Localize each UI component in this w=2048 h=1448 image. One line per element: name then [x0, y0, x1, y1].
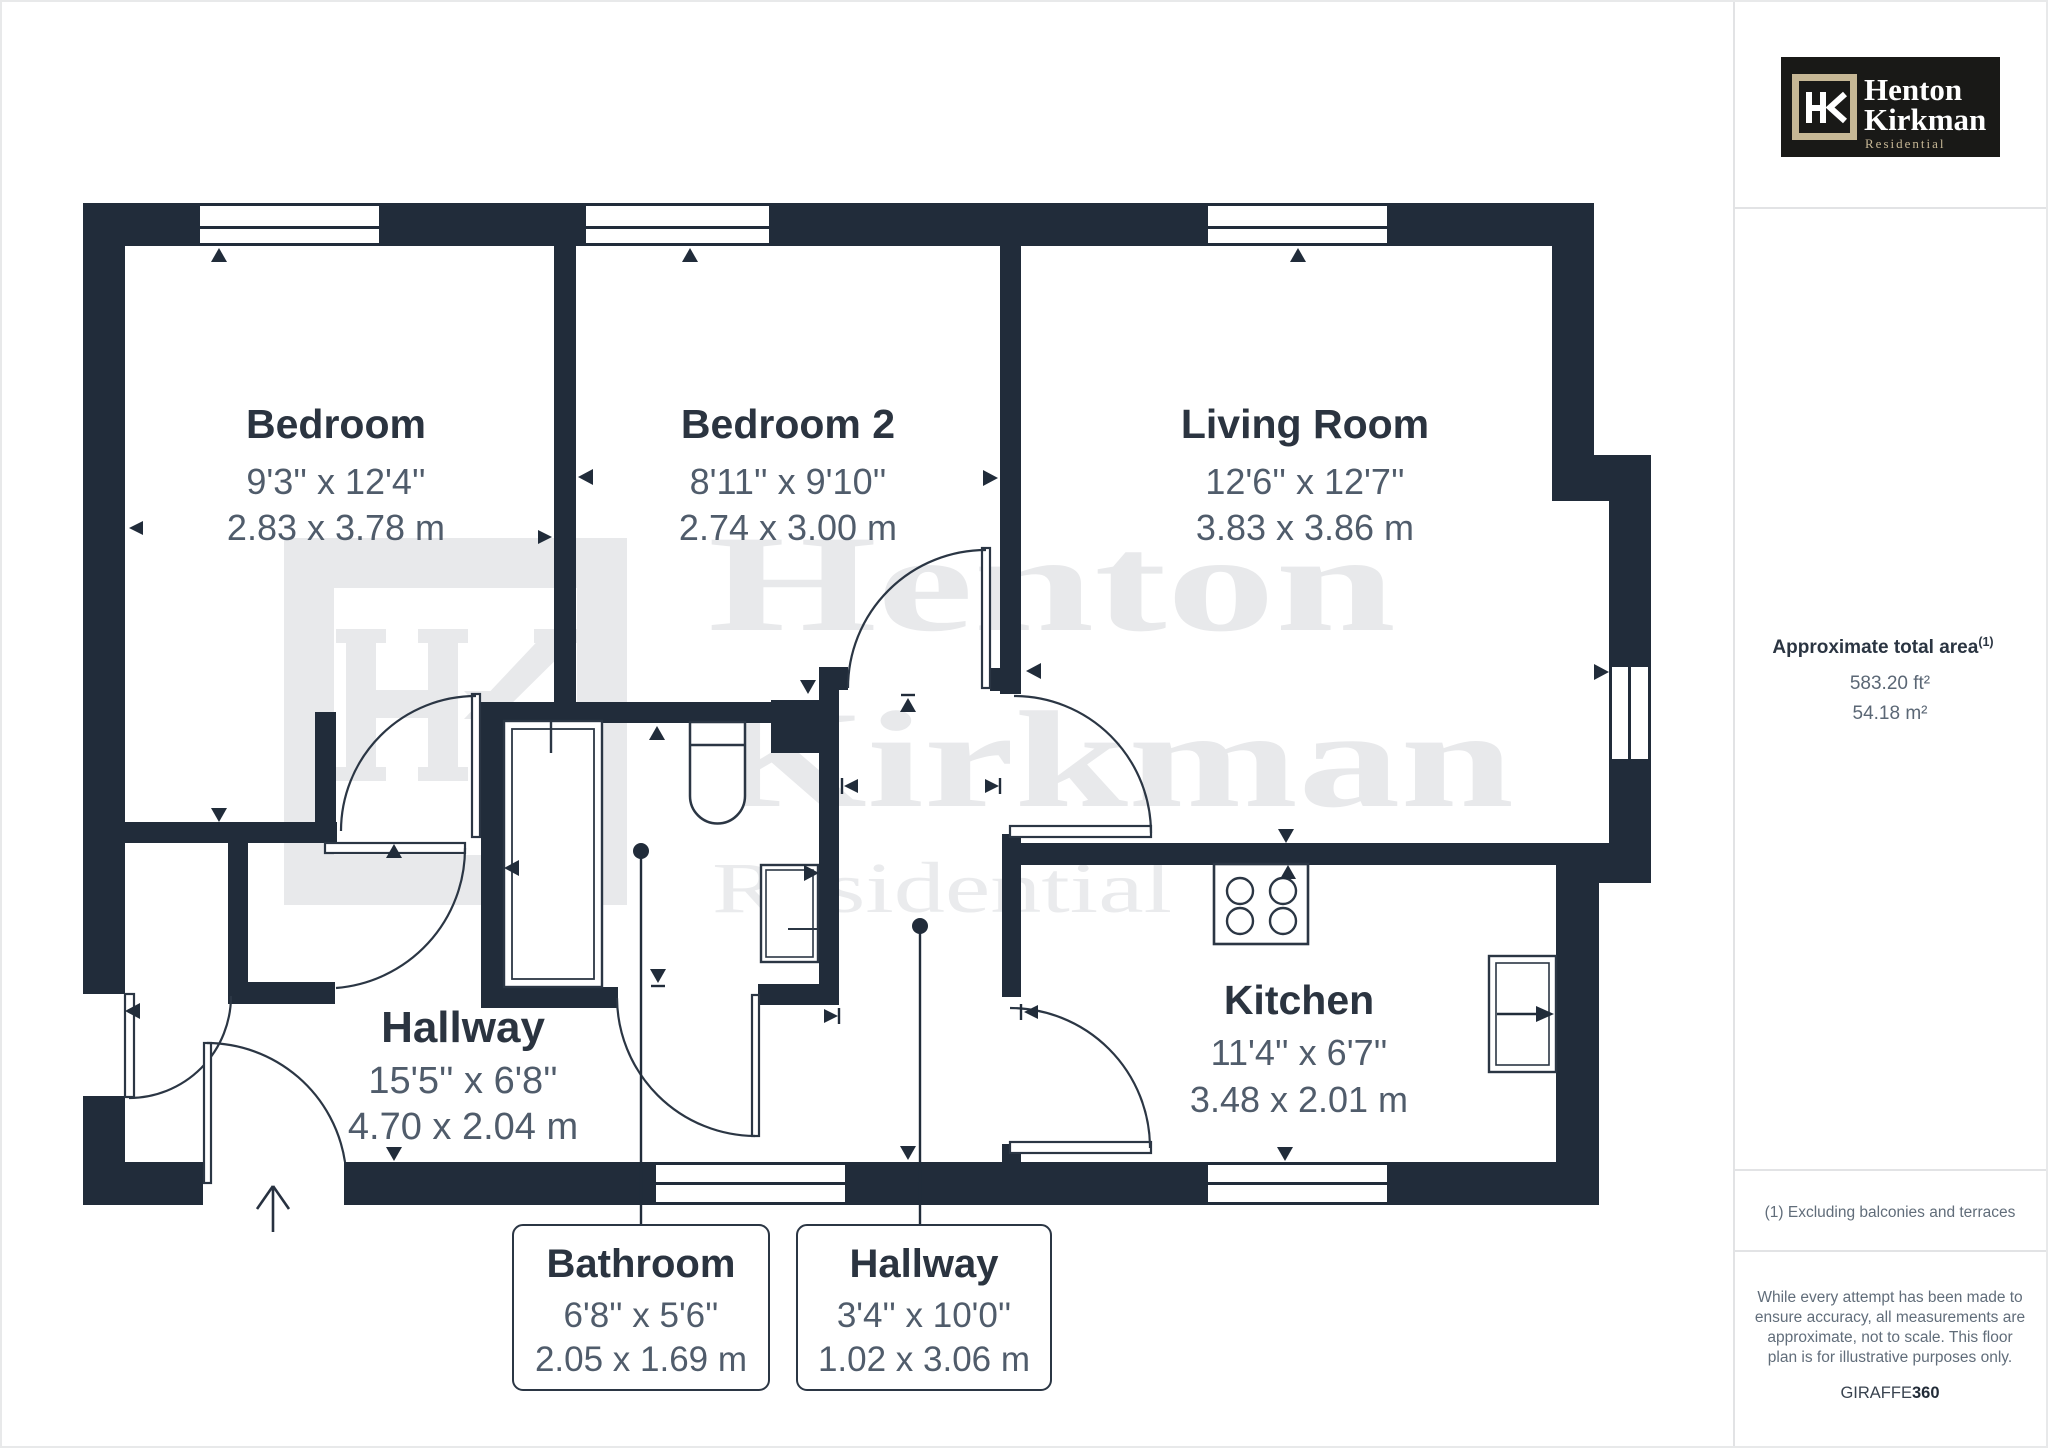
svg-text:583.20 ft²: 583.20 ft² — [1850, 673, 1930, 694]
svg-text:approximate, not to scale. Thi: approximate, not to scale. This floor — [1767, 1329, 2012, 1346]
svg-text:Living Room: Living Room — [1181, 401, 1429, 447]
svg-text:3.83 x 3.86 m: 3.83 x 3.86 m — [1196, 507, 1414, 548]
svg-text:6'8'' x 5'6'': 6'8'' x 5'6'' — [564, 1296, 719, 1335]
svg-text:Kirkman: Kirkman — [1864, 102, 1986, 137]
svg-text:12'6'' x 12'7'': 12'6'' x 12'7'' — [1205, 461, 1404, 502]
svg-text:plan is for illustrative purpo: plan is for illustrative purposes only. — [1768, 1349, 2012, 1366]
svg-text:11'4'' x 6'7'': 11'4'' x 6'7'' — [1211, 1032, 1388, 1073]
svg-text:2.83 x 3.78 m: 2.83 x 3.78 m — [227, 507, 445, 548]
svg-text:(1) Excluding balconies and te: (1) Excluding balconies and terraces — [1765, 1204, 2016, 1221]
svg-text:2.74 x 3.00 m: 2.74 x 3.00 m — [679, 507, 897, 548]
svg-text:2.05 x 1.69 m: 2.05 x 1.69 m — [535, 1340, 747, 1379]
svg-text:4.70 x 2.04 m: 4.70 x 2.04 m — [348, 1106, 578, 1148]
svg-text:Bedroom 2: Bedroom 2 — [681, 401, 895, 447]
svg-text:Kitchen: Kitchen — [1224, 977, 1374, 1023]
svg-text:Bedroom: Bedroom — [246, 401, 426, 447]
svg-text:Bathroom: Bathroom — [547, 1242, 736, 1286]
svg-text:While every attempt has been m: While every attempt has been made to — [1757, 1289, 2022, 1306]
svg-text:ensure accuracy, all measureme: ensure accuracy, all measurements are — [1755, 1309, 2025, 1326]
svg-text:Approximate total area(1): Approximate total area(1) — [1772, 635, 1993, 658]
svg-text:GIRAFFE360: GIRAFFE360 — [1840, 1384, 1939, 1402]
svg-text:3.48 x 2.01 m: 3.48 x 2.01 m — [1190, 1079, 1408, 1120]
svg-text:15'5'' x 6'8'': 15'5'' x 6'8'' — [368, 1060, 557, 1102]
svg-text:Hallway: Hallway — [850, 1242, 1000, 1286]
svg-text:Residential: Residential — [1865, 136, 1946, 151]
svg-text:9'3'' x 12'4'': 9'3'' x 12'4'' — [246, 461, 425, 502]
svg-text:Hallway: Hallway — [381, 1003, 545, 1052]
svg-text:54.18 m²: 54.18 m² — [1853, 703, 1928, 724]
svg-text:8'11'' x 9'10'': 8'11'' x 9'10'' — [690, 461, 887, 502]
svg-text:1.02 x 3.06 m: 1.02 x 3.06 m — [818, 1340, 1030, 1379]
svg-text:3'4'' x 10'0'': 3'4'' x 10'0'' — [837, 1296, 1011, 1335]
